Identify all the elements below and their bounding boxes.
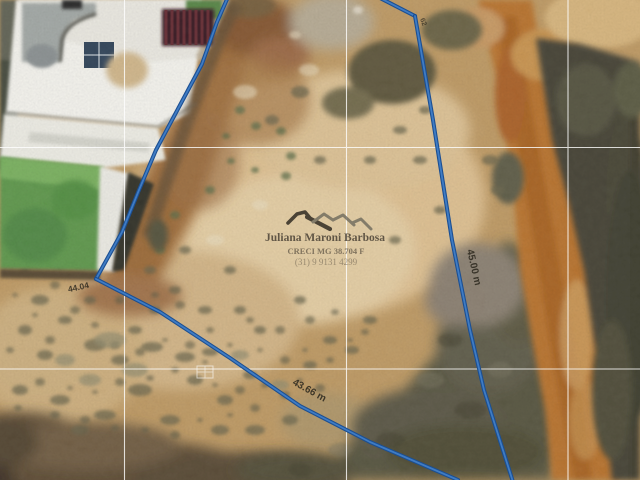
svg-text:(31) 9 9131 4299: (31) 9 9131 4299 [295, 257, 358, 267]
svg-text:Juliana Maroni Barbosa: Juliana Maroni Barbosa [265, 232, 385, 244]
svg-text:CRECI MG 38.704 F: CRECI MG 38.704 F [288, 246, 365, 256]
